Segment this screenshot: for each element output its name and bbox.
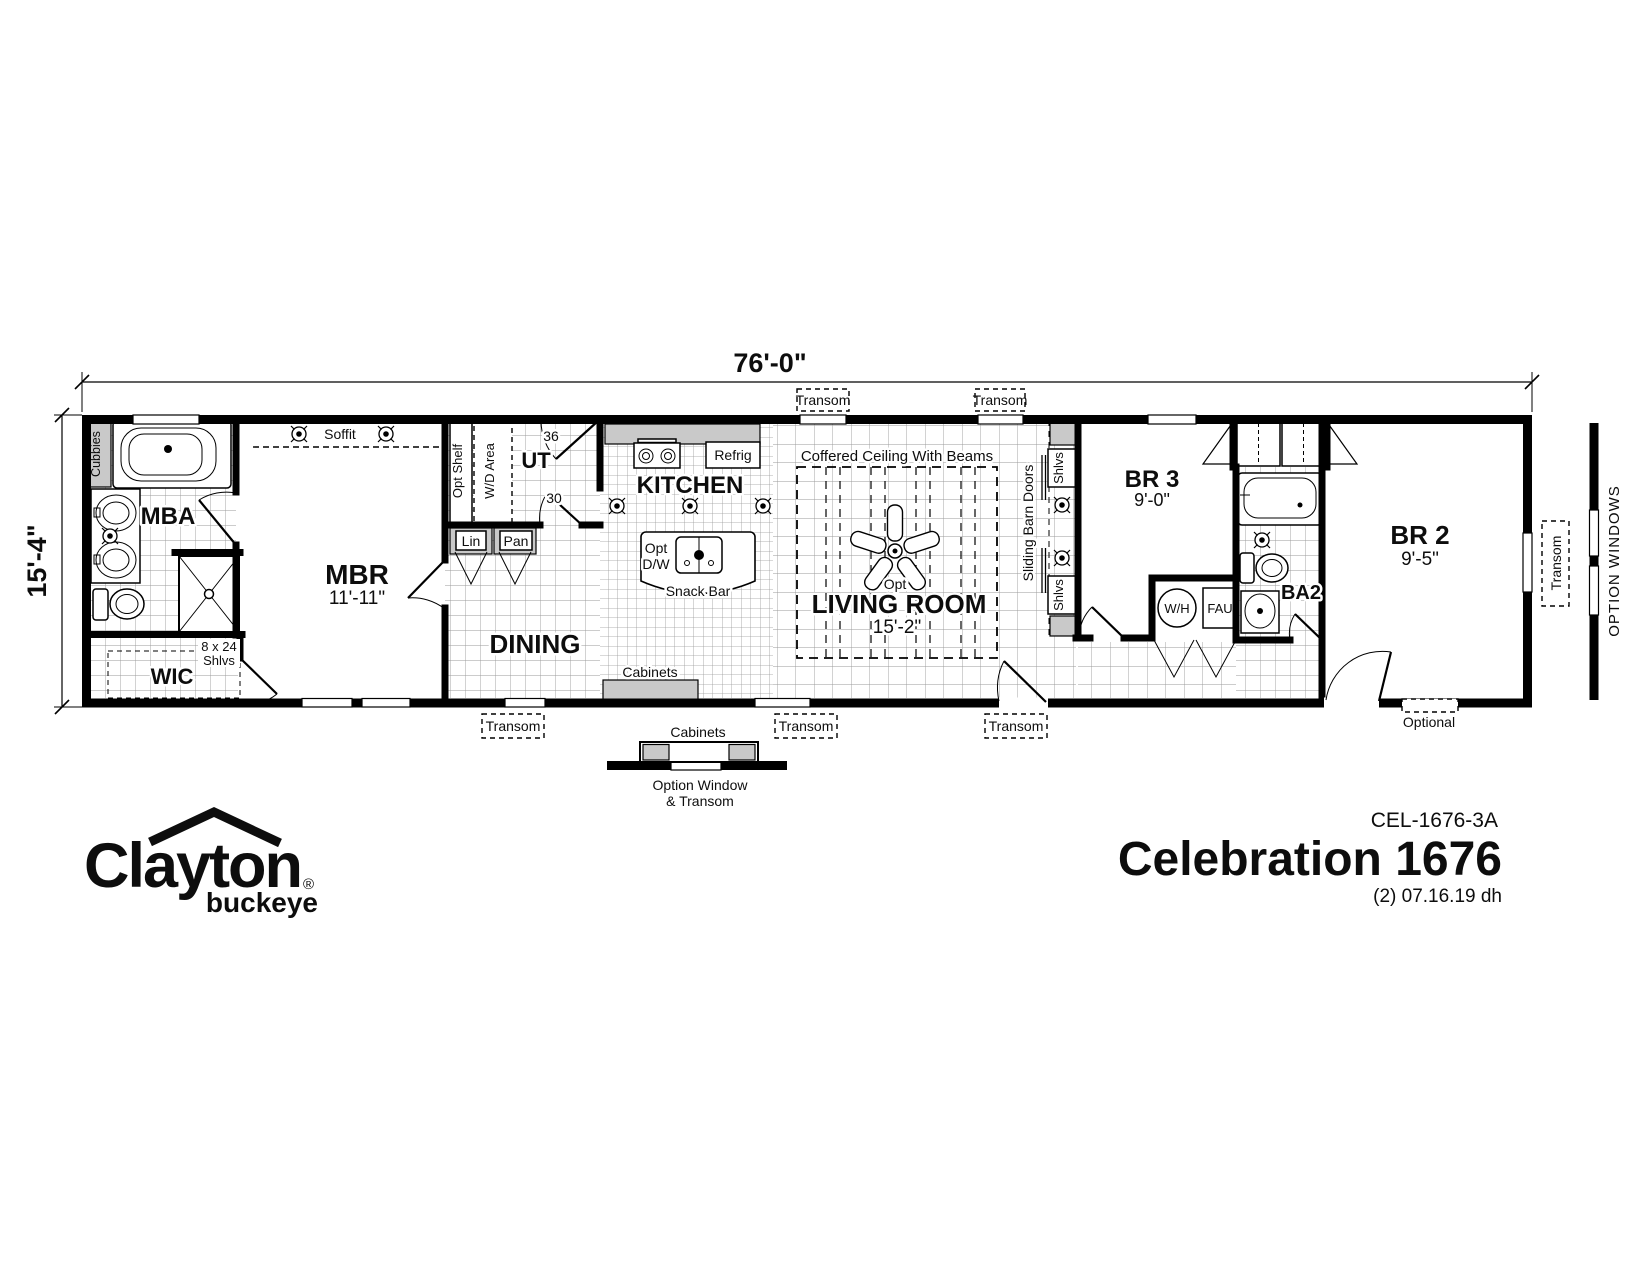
- room-size-br3: 9'-0": [1134, 490, 1170, 510]
- range: [634, 439, 680, 468]
- toilet2: [1240, 553, 1288, 583]
- garden-tub: [113, 421, 231, 488]
- sliding-barn-doors-label: Sliding Barn Doors: [1020, 465, 1036, 582]
- transom-label-bottom-3: Transom: [989, 718, 1044, 734]
- overall-depth-dimension: 15'-4": [22, 524, 52, 597]
- option-window-label-line2: & Transom: [666, 793, 734, 809]
- pan-closet-label: Pan: [504, 533, 529, 549]
- room-label-mba: MBA: [141, 503, 196, 530]
- opt-fan-label: Opt: [884, 576, 907, 592]
- option-window-detail: Cabinets Option Window & Transom: [607, 724, 787, 809]
- cubbies-label: Cubbies: [89, 431, 103, 477]
- opt-dw-label-line1: Opt: [645, 540, 668, 556]
- transom-label-bottom-1: Transom: [486, 718, 541, 734]
- toilet: [93, 589, 144, 620]
- transom-label-bottom-2: Transom: [779, 718, 834, 734]
- snack-bar-label: Snack Bar: [666, 583, 731, 599]
- door-size-36: 36: [543, 428, 559, 444]
- room-label-br2: BR 2: [1390, 520, 1449, 550]
- shelf-8x24-label: 8 x 24: [201, 639, 236, 654]
- sink2: [1241, 591, 1279, 633]
- dimension-depth: 15'-4": [22, 408, 82, 714]
- opt-dw-label-line2: D/W: [642, 556, 670, 572]
- room-size-living: 15'-2": [873, 617, 921, 638]
- coffered-ceiling-label: Coffered Ceiling With Beams: [801, 448, 993, 465]
- option-window-label-line1: Option Window: [653, 777, 749, 793]
- room-label-wic: WIC: [151, 664, 194, 689]
- tub2: [1238, 473, 1322, 525]
- shlvs-label-upper: Shlvs: [1051, 452, 1066, 484]
- fau-label: FAU: [1207, 601, 1232, 616]
- model-code: CEL-1676-3A: [1371, 809, 1498, 832]
- option-windows-bar: [1590, 423, 1599, 700]
- optional-label: Optional: [1403, 714, 1455, 730]
- model-name: Celebration 1676: [1118, 833, 1502, 886]
- room-label-dining: DINING: [490, 629, 581, 659]
- refrig-label: Refrig: [714, 447, 751, 463]
- room-label-mbr: MBR: [325, 559, 389, 590]
- wd-area-label: W/D Area: [482, 442, 497, 498]
- kitchen-counter: [605, 424, 760, 444]
- shelf-shlvs-label: Shlvs: [203, 653, 235, 668]
- shower: [179, 550, 239, 632]
- room-label-ut: UT: [521, 448, 551, 473]
- door-size-30: 30: [546, 490, 562, 506]
- transom-label-top-1: Transom: [796, 392, 851, 408]
- hall-closet: [1203, 421, 1357, 466]
- optional-window-box: [1402, 699, 1458, 712]
- br2-door-opening: [1324, 698, 1379, 709]
- opt-shelf-label: Opt Shelf: [450, 444, 465, 499]
- floor-plan-canvas: 76'-0" 15'-4" MBA MBR 11'-11" WIC UT KIT…: [0, 0, 1650, 1275]
- soffit-label: Soffit: [324, 426, 356, 442]
- transom-label-side: Transom: [1548, 536, 1564, 591]
- room-label-living: LIVING ROOM: [812, 589, 987, 619]
- option-windows-label: OPTION WINDOWS: [1606, 485, 1623, 637]
- logo-sub-brand: buckeye: [206, 887, 318, 918]
- cabinets-label-plan: Cabinets: [622, 664, 677, 680]
- room-label-br3: BR 3: [1125, 466, 1180, 493]
- revision-date: (2) 07.16.19 dh: [1373, 886, 1502, 907]
- shlvs-label-lower: Shlvs: [1051, 579, 1066, 611]
- transom-label-top-2: Transom: [973, 392, 1028, 408]
- room-label-kitchen: KITCHEN: [637, 472, 744, 499]
- lin-closet-label: Lin: [462, 533, 481, 549]
- cabinets-lower: [603, 680, 698, 701]
- room-label-ba2: BA2: [1281, 582, 1321, 604]
- brand-logo: Clayton ® buckeye: [84, 812, 318, 918]
- overall-width-dimension: 76'-0": [733, 348, 806, 378]
- title-block: CEL-1676-3A Celebration 1676 (2) 07.16.1…: [1118, 809, 1502, 907]
- room-size-br2: 9'-5": [1401, 549, 1439, 570]
- entry-door-opening: [999, 698, 1048, 709]
- room-size-mbr: 11'-11": [329, 588, 385, 609]
- water-heater-label: W/H: [1164, 601, 1189, 616]
- double-vanity: [91, 489, 140, 583]
- cabinets-label-detail: Cabinets: [670, 724, 725, 740]
